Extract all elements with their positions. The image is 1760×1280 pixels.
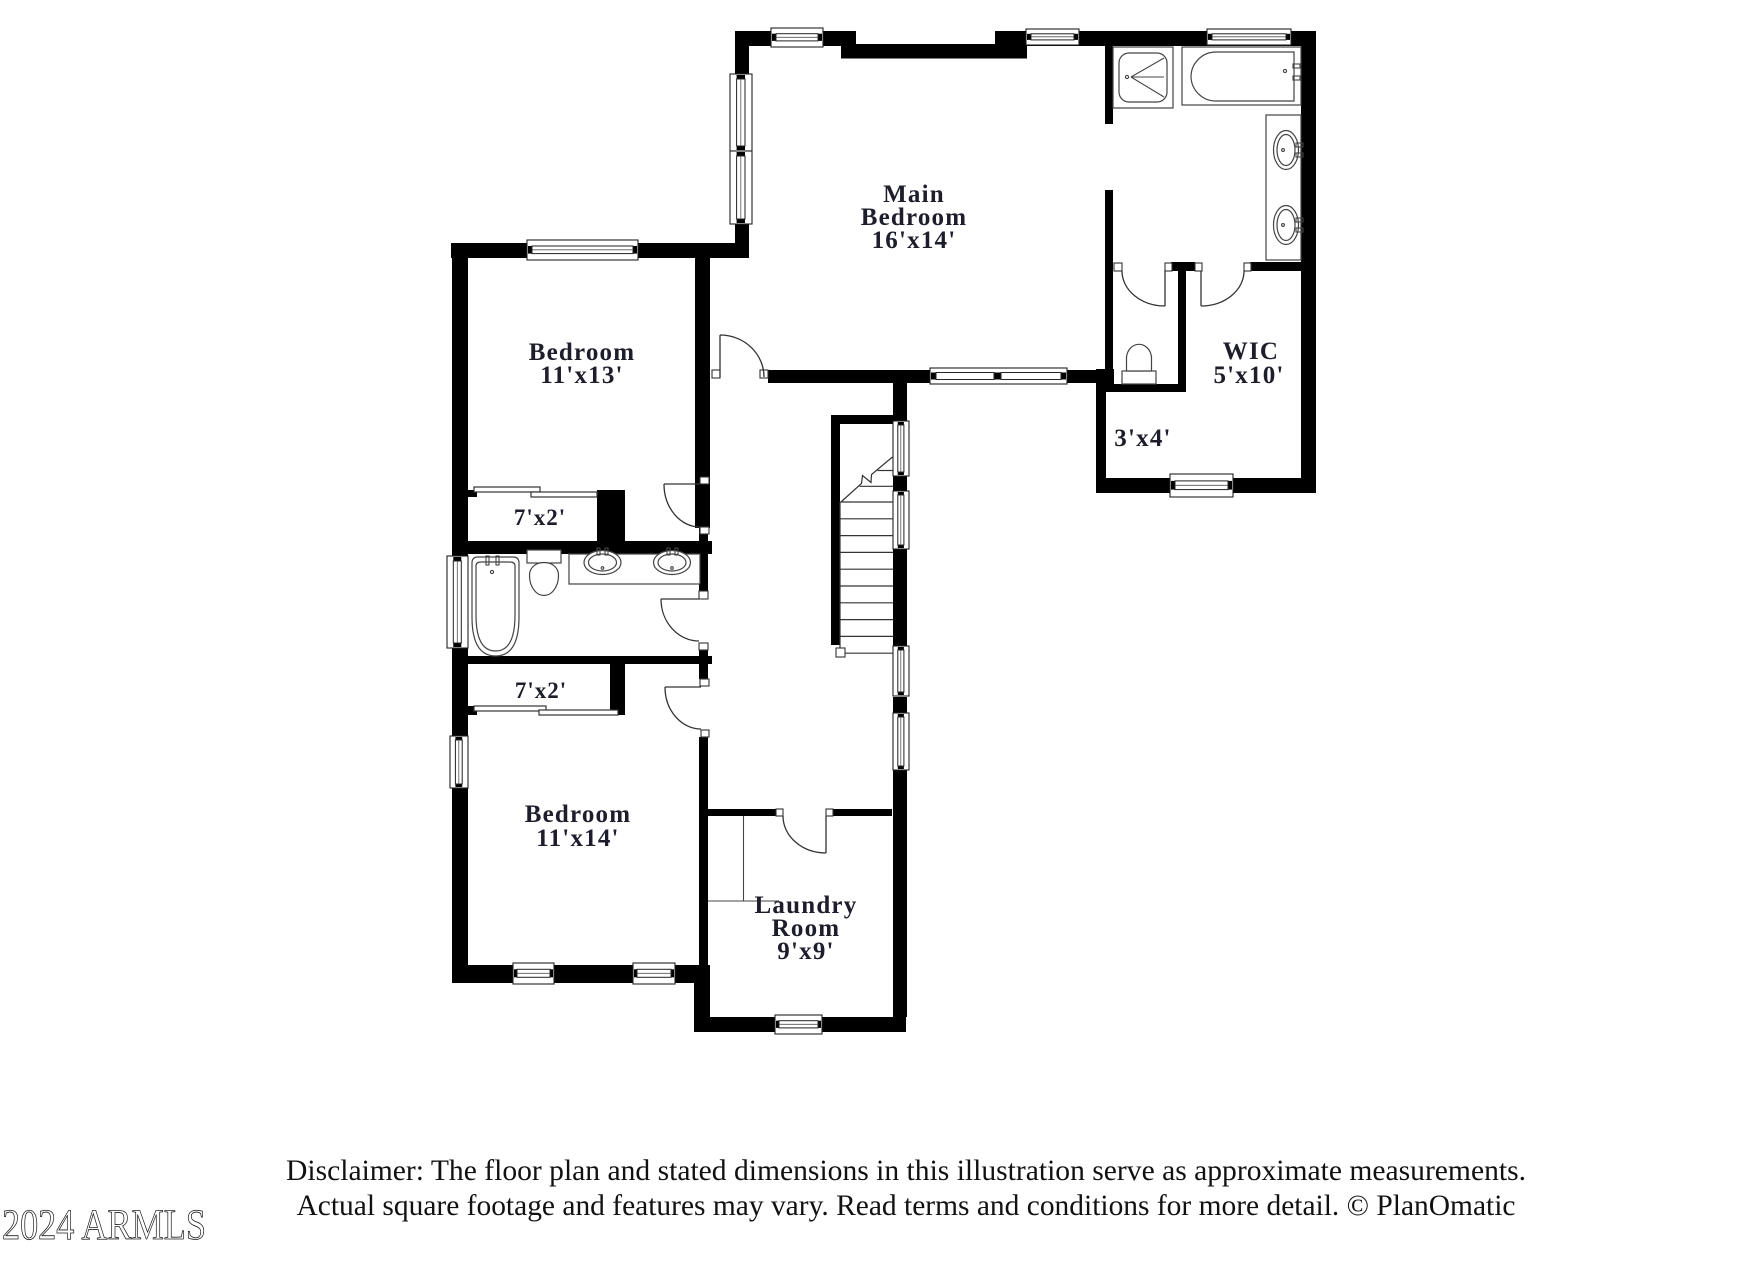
svg-text:WIC: WIC <box>1223 338 1279 365</box>
svg-text:3'x4': 3'x4' <box>1114 425 1171 452</box>
svg-text:5'x10': 5'x10' <box>1213 362 1284 389</box>
svg-text:2024 ARMLS: 2024 ARMLS <box>2 1202 206 1249</box>
svg-text:7'x2': 7'x2' <box>515 678 567 703</box>
svg-text:11'x13': 11'x13' <box>540 362 623 389</box>
svg-text:Actual square footage and feat: Actual square footage and features may v… <box>297 1189 1516 1222</box>
svg-text:16'x14': 16'x14' <box>872 227 957 254</box>
svg-text:7'x2': 7'x2' <box>514 505 566 530</box>
svg-text:11'x14': 11'x14' <box>536 825 619 852</box>
svg-text:Bedroom: Bedroom <box>525 801 632 828</box>
svg-text:9'x9': 9'x9' <box>777 938 834 965</box>
svg-text:Disclaimer: The floor plan and: Disclaimer: The floor plan and stated di… <box>286 1154 1526 1187</box>
